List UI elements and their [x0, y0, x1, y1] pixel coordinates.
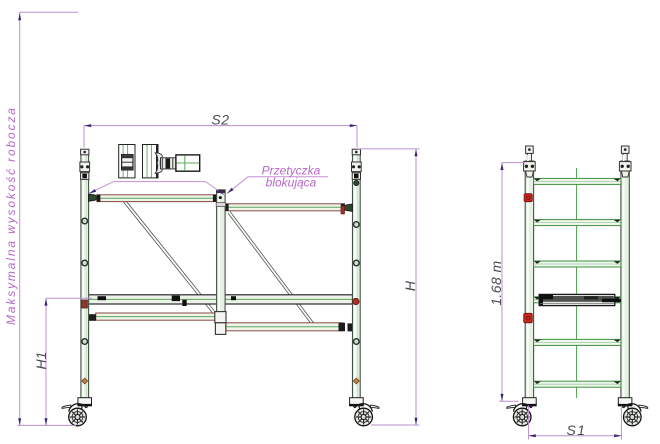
svg-text:1.68 m: 1.68 m [488, 260, 504, 305]
svg-text:S2: S2 [211, 111, 229, 127]
svg-text:blokująca: blokująca [266, 175, 317, 189]
svg-text:H1: H1 [33, 352, 49, 370]
svg-text:H: H [402, 280, 418, 291]
svg-text:S1: S1 [567, 422, 587, 438]
